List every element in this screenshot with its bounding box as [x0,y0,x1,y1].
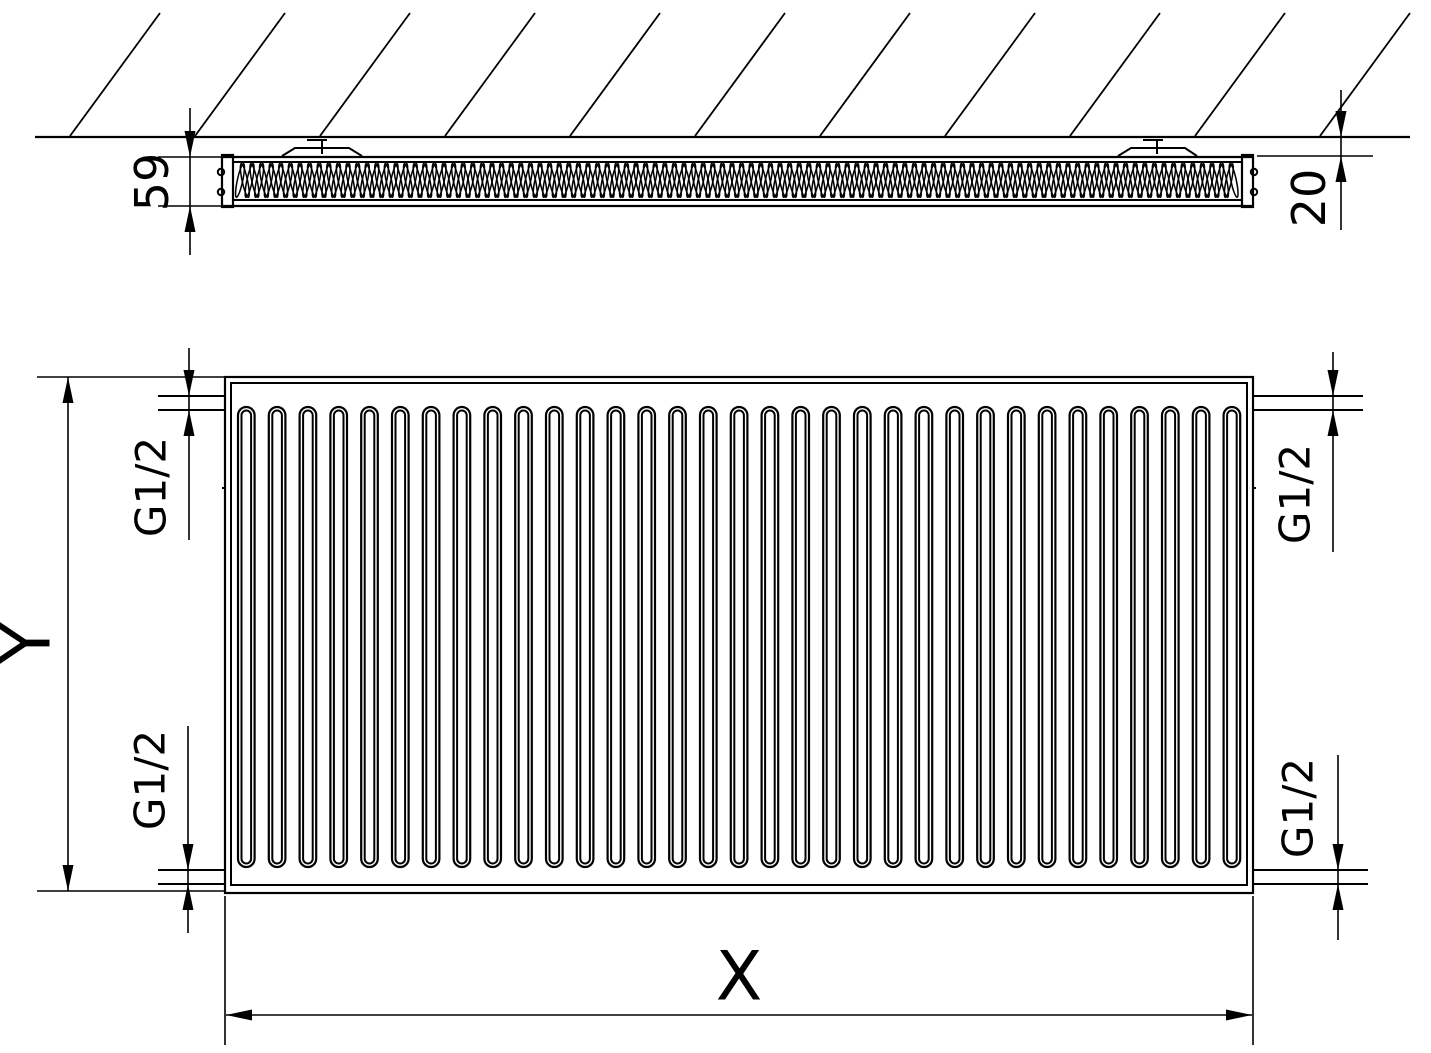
arrow-down-icon [63,865,74,891]
hatch-line [445,13,535,136]
channel-inner-outline [426,411,436,864]
radiator-top-view [218,155,1257,207]
panel-channel [977,407,994,867]
arrow-down-icon [184,370,195,396]
panel-channel [885,407,902,867]
depth-dimension-label: 59 [125,153,179,212]
channel-inner-outline [1012,411,1022,864]
channel-outer-outline [1070,407,1087,867]
panel-channel [546,407,563,867]
panel-end-cap-left [222,155,233,207]
panel-channel [484,407,501,867]
channel-inner-outline [396,411,406,864]
technical-drawing: 59 20 G1/2 [0,0,1431,1053]
panel-channel [792,407,809,867]
channel-outer-outline [854,407,871,867]
panel-channel [1224,407,1241,867]
panel-channel [577,407,594,867]
width-dimension-label: X [716,938,763,1017]
channel-outer-outline [577,407,594,867]
panel-channel [1193,407,1210,867]
panel-channel [238,407,255,867]
channel-outer-outline [608,407,625,867]
panel-channel [269,407,286,867]
hatch-line [195,13,285,136]
wall-gap-dimension-label: 20 [1282,169,1336,228]
channel-outer-outline [1162,407,1179,867]
arrow-down-icon [185,131,196,157]
channel-outer-outline [1224,407,1241,867]
panel-channel [1008,407,1025,867]
channel-outer-outline [238,407,255,867]
channel-outer-outline [731,407,748,867]
panel-channel [823,407,840,867]
panel-channel [916,407,933,867]
channel-outer-outline [361,407,378,867]
channel-outer-outline [300,407,317,867]
connection-stub-bottom-left [158,870,224,884]
channel-inner-outline [827,411,837,864]
channel-inner-outline [888,411,898,864]
channel-outer-outline [1131,407,1148,867]
channel-outer-outline [1193,407,1210,867]
panel-channel [423,407,440,867]
channel-inner-outline [734,411,744,864]
panel-channel [1131,407,1148,867]
arrow-left-icon [226,1010,252,1021]
arrow-down-icon [1336,111,1347,137]
channel-outer-outline [423,407,440,867]
hatch-line [1070,13,1160,136]
channel-outer-outline [330,407,347,867]
channel-outer-outline [792,407,809,867]
channel-inner-outline [1042,411,1052,864]
arrow-right-icon [1226,1010,1252,1021]
channel-inner-outline [242,411,252,864]
channel-inner-outline [981,411,991,864]
hatch-line [1320,13,1410,136]
panel-channel [300,407,317,867]
panel-channel [1100,407,1117,867]
thread-label-bottom-right: G1/2 [1274,758,1323,858]
dim-thread-top-right: G1/2 [1271,352,1339,552]
channel-inner-outline [580,411,590,864]
channel-inner-outline [1073,411,1083,864]
height-dimension-label: Y [0,622,67,665]
panel-channel [515,407,532,867]
channel-inner-outline [1227,411,1237,864]
dim-thread-bottom-right: G1/2 [1274,755,1344,940]
connection-stub-top-right [1254,396,1363,410]
channel-outer-outline [823,407,840,867]
thread-label-top-right: G1/2 [1271,444,1320,544]
channel-inner-outline [334,411,344,864]
arrow-down-icon [1328,370,1339,396]
channel-inner-outline [1104,411,1114,864]
channel-field [238,407,1240,867]
channel-outer-outline [916,407,933,867]
channel-outer-outline [1100,407,1117,867]
panel-channel [330,407,347,867]
wall-hatch-field [70,13,1410,136]
channel-outer-outline [669,407,686,867]
hatch-line [820,13,910,136]
channel-outer-outline [484,407,501,867]
channel-outer-outline [546,407,563,867]
arrow-up-icon [185,206,196,232]
connection-stub-bottom-right [1254,870,1368,884]
channel-inner-outline [519,411,529,864]
panel-channel [392,407,409,867]
channel-inner-outline [642,411,652,864]
hatch-line [570,13,660,136]
channel-outer-outline [269,407,286,867]
arrow-up-icon [1333,884,1344,910]
channel-inner-outline [858,411,868,864]
thread-label-top-left: G1/2 [127,437,176,537]
dim-width: X [225,896,1253,1045]
top-view: 59 20 [35,13,1410,255]
channel-inner-outline [1166,411,1176,864]
channel-inner-outline [488,411,498,864]
hatch-line [1195,13,1285,136]
channel-outer-outline [392,407,409,867]
channel-outer-outline [454,407,471,867]
channel-outer-outline [1039,407,1056,867]
arrow-up-icon [1336,156,1347,182]
channel-inner-outline [272,411,282,864]
channel-outer-outline [638,407,655,867]
panel-channel [946,407,963,867]
wall-bracket-right [1118,140,1197,156]
dim-wall-gap: 20 [1257,90,1373,230]
front-view: G1/2 G1/2 G1/2 G1/2 Y [0,348,1368,1045]
hatch-line [320,13,410,136]
panel-channel [361,407,378,867]
dim-height: Y [0,377,225,891]
panel-channel [700,407,717,867]
arrow-up-icon [63,377,74,403]
channel-outer-outline [946,407,963,867]
panel-channel [1070,407,1087,867]
channel-inner-outline [550,411,560,864]
channel-inner-outline [1135,411,1145,864]
channel-inner-outline [796,411,806,864]
radiator-dimension-drawing: 59 20 G1/2 [0,0,1431,1053]
channel-inner-outline [673,411,683,864]
channel-inner-outline [303,411,313,864]
panel-channel [762,407,779,867]
channel-inner-outline [950,411,960,864]
channel-outer-outline [700,407,717,867]
panel-channel [1162,407,1179,867]
panel-channel [608,407,625,867]
panel-channel [638,407,655,867]
arrow-up-icon [183,884,194,910]
connection-stub-top-left [158,396,224,410]
arrow-up-icon [184,410,195,436]
channel-outer-outline [977,407,994,867]
channel-outer-outline [515,407,532,867]
panel-channel [854,407,871,867]
channel-inner-outline [1196,411,1206,864]
channel-inner-outline [365,411,375,864]
arrow-up-icon [1328,410,1339,436]
thread-label-bottom-left: G1/2 [126,730,175,830]
dim-thread-bottom-left: G1/2 [126,726,194,933]
arrow-down-icon [1333,844,1344,870]
panel-outline [225,377,1253,893]
channel-outer-outline [1008,407,1025,867]
panel-channel [1039,407,1056,867]
panel-channel [669,407,686,867]
channel-outer-outline [885,407,902,867]
channel-inner-outline [704,411,714,864]
panel-channel [731,407,748,867]
panel-end-cap-right [1242,155,1253,207]
panel-channel [454,407,471,867]
channel-inner-outline [765,411,775,864]
hatch-line [70,13,160,136]
hatch-line [695,13,785,136]
wall-bracket-left [282,140,362,156]
channel-outer-outline [762,407,779,867]
panel-inner-outline [231,383,1247,885]
channel-inner-outline [457,411,467,864]
convector-fin-field [234,163,1240,198]
channel-inner-outline [919,411,929,864]
arrow-down-icon [183,844,194,870]
channel-inner-outline [611,411,621,864]
hatch-line [945,13,1035,136]
dim-depth: 59 [125,108,222,255]
